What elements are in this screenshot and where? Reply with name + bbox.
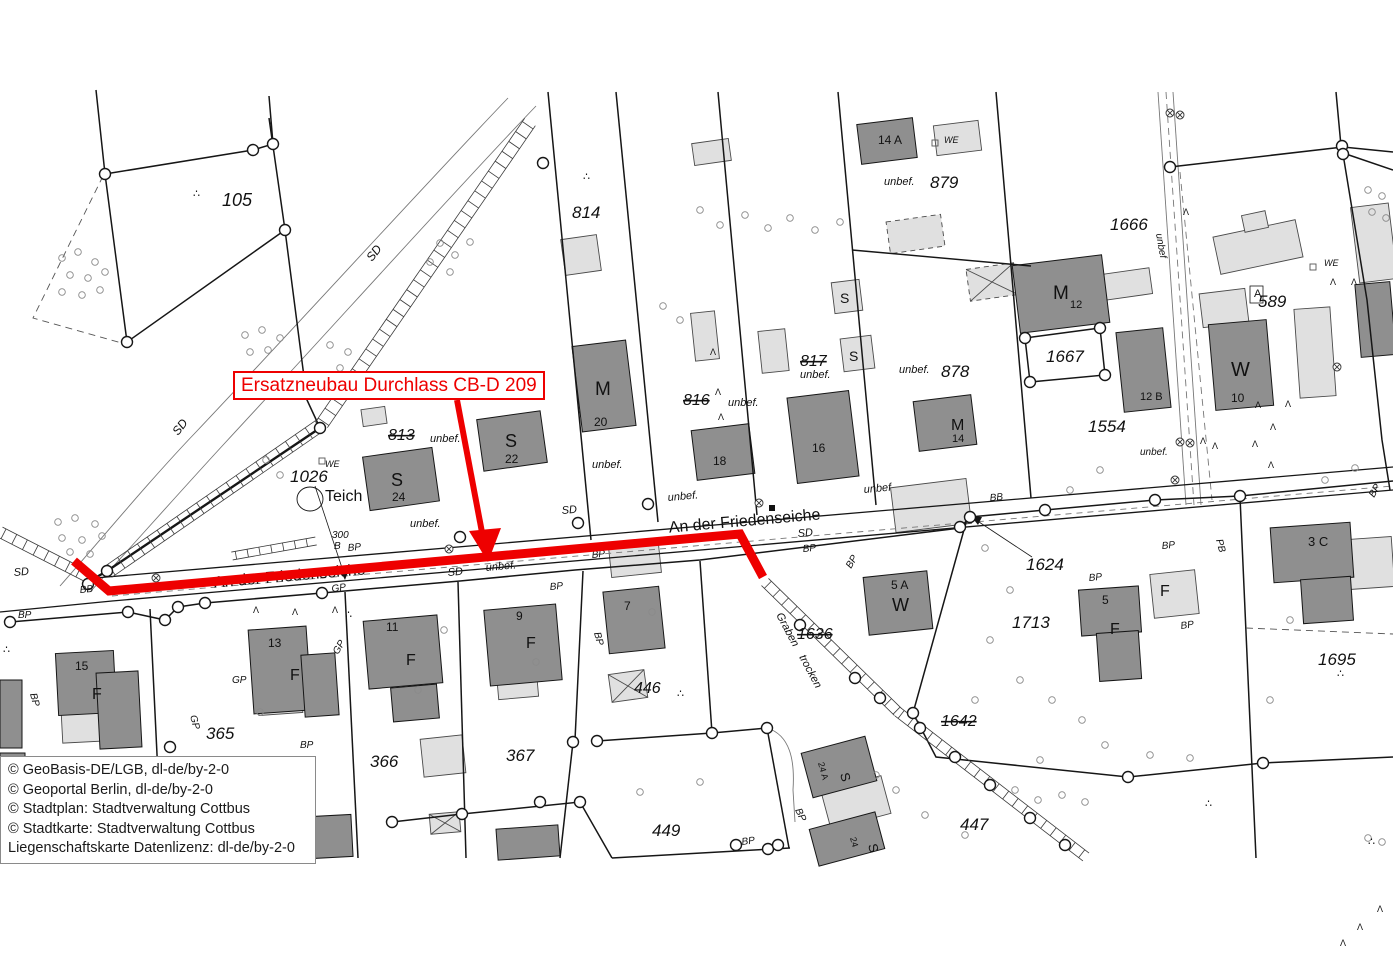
embankment-tie bbox=[33, 545, 38, 555]
map-label: F bbox=[92, 686, 102, 703]
boundary-vertex-circle bbox=[122, 337, 133, 348]
bush-symbol bbox=[447, 269, 454, 276]
dark-building bbox=[363, 615, 443, 689]
boundary-vertex-circle bbox=[1095, 323, 1106, 334]
embankment-tie bbox=[54, 556, 59, 566]
grass-symbol: Λ bbox=[718, 412, 724, 422]
embankment-tie bbox=[842, 657, 849, 664]
embankment-tie bbox=[1041, 820, 1047, 828]
boundary-vertex-circle bbox=[268, 139, 279, 150]
boundary-vertex-circle bbox=[455, 532, 466, 543]
map-label: 300 bbox=[332, 530, 349, 541]
map-label: F bbox=[1160, 583, 1170, 600]
boundary bbox=[1170, 147, 1393, 167]
embankment-tie bbox=[927, 732, 933, 740]
embankment-tie bbox=[177, 516, 184, 527]
bush-symbol bbox=[1067, 487, 1074, 494]
bush-symbol bbox=[1287, 617, 1294, 624]
bush-symbol bbox=[1102, 742, 1109, 749]
map-label: SD bbox=[447, 566, 463, 579]
dark-building bbox=[1355, 282, 1393, 358]
grass-symbol: Λ bbox=[1212, 441, 1218, 451]
embankment-tie bbox=[325, 408, 336, 415]
map-label: 814 bbox=[572, 203, 600, 222]
bush-symbol bbox=[1379, 193, 1386, 200]
map-label: unbef bbox=[1153, 233, 1168, 261]
bush-symbol bbox=[1012, 787, 1019, 794]
bush-symbol bbox=[79, 537, 86, 544]
map-label: W bbox=[892, 595, 909, 615]
dark-building bbox=[484, 604, 562, 686]
boundary-vertex-circle bbox=[5, 617, 16, 628]
grass-symbol: Λ bbox=[253, 605, 259, 615]
boundary-vertex-circle bbox=[1040, 505, 1051, 516]
embankment-tie bbox=[400, 299, 411, 306]
bush-symbol bbox=[1007, 587, 1014, 594]
bush-symbol bbox=[92, 521, 99, 528]
light-building bbox=[758, 329, 789, 374]
boundary-vertex-circle bbox=[908, 708, 919, 719]
attribution-line: © Geoportal Berlin, dl-de/by-2-0 bbox=[8, 781, 308, 801]
bush-symbol bbox=[1049, 697, 1056, 704]
embankment-tie bbox=[898, 710, 904, 718]
boundary-vertex-circle bbox=[731, 840, 742, 851]
map-label: 365 bbox=[206, 724, 235, 743]
bush-symbol bbox=[1267, 697, 1274, 704]
bush-symbol bbox=[441, 627, 448, 634]
boundary-vertex-circle bbox=[1100, 370, 1111, 381]
map-label: 1695 bbox=[1318, 650, 1356, 669]
bush-symbol bbox=[467, 239, 474, 246]
boundary bbox=[96, 90, 273, 174]
map-label: B bbox=[334, 541, 341, 552]
map-label: BP bbox=[844, 553, 860, 570]
embankment-tie bbox=[386, 319, 397, 326]
bush-symbol bbox=[99, 533, 106, 540]
map-label: BP bbox=[347, 542, 362, 554]
dot-triple-symbol: ∴ bbox=[1205, 798, 1212, 810]
dark-building bbox=[1270, 522, 1354, 582]
boundary-vertex-circle bbox=[1025, 377, 1036, 388]
map-label: BP bbox=[1180, 619, 1195, 632]
grass-symbol: Λ bbox=[1270, 422, 1276, 432]
map-label: BP bbox=[1367, 482, 1383, 499]
boundary-vertex-circle bbox=[200, 598, 211, 609]
bush-symbol bbox=[59, 289, 66, 296]
dot-triple-symbol: ∴ bbox=[1337, 668, 1344, 680]
bush-symbol bbox=[1059, 792, 1066, 799]
bush-symbol bbox=[787, 215, 794, 222]
boundary-vertex-circle bbox=[915, 723, 926, 734]
boundary-vertex-circle bbox=[707, 728, 718, 739]
map-label: Teich bbox=[325, 488, 362, 505]
embankment-tie bbox=[44, 551, 49, 561]
map-label: SD bbox=[169, 416, 191, 438]
map-label: GP bbox=[232, 675, 247, 686]
map-label: S bbox=[505, 431, 517, 451]
embankment-tie bbox=[1012, 798, 1018, 806]
bush-symbol bbox=[327, 342, 334, 349]
map-label: SD bbox=[797, 527, 813, 540]
embankment-tie bbox=[271, 545, 272, 553]
bush-symbol bbox=[697, 779, 704, 786]
bush-symbol bbox=[59, 255, 66, 262]
embankment-tie bbox=[366, 349, 377, 356]
dark-building bbox=[913, 395, 977, 452]
map-label: BP bbox=[18, 610, 32, 621]
map-label: PB bbox=[1213, 538, 1227, 554]
boundary bbox=[852, 250, 1031, 266]
boundary-vertex-circle bbox=[1060, 840, 1071, 851]
diagonal-road-edge bbox=[90, 106, 536, 592]
boundary-vertex-circle bbox=[1150, 495, 1161, 506]
map-label: BB bbox=[989, 492, 1004, 504]
grass-symbol: Λ bbox=[1183, 207, 1189, 217]
map-label: SD bbox=[561, 504, 577, 517]
map-label: S bbox=[391, 470, 403, 490]
dark-building bbox=[809, 812, 885, 866]
bush-symbol bbox=[812, 227, 819, 234]
embankment-tie bbox=[306, 539, 307, 547]
embankment-tie bbox=[393, 309, 404, 316]
map-label: 878 bbox=[941, 362, 970, 381]
dark-building bbox=[1096, 631, 1141, 682]
map-label: M bbox=[595, 379, 611, 400]
boundary-vertex-circle bbox=[457, 809, 468, 820]
attribution-line: Liegenschaftskarte Datenlizenz: dl-de/by… bbox=[8, 839, 308, 859]
boundary bbox=[597, 728, 767, 741]
map-label: 366 bbox=[370, 752, 399, 771]
map-label: 5 A bbox=[891, 578, 908, 592]
light-building bbox=[1150, 570, 1199, 618]
bush-symbol bbox=[765, 225, 772, 232]
boundary bbox=[575, 571, 583, 740]
map-label: 367 bbox=[506, 746, 535, 765]
embankment-tie bbox=[488, 171, 499, 178]
embankment-tie bbox=[294, 541, 295, 549]
grass-symbol: Λ bbox=[1330, 277, 1336, 287]
dark-building bbox=[787, 391, 859, 484]
boundary-vertex-circle bbox=[160, 615, 171, 626]
bush-symbol bbox=[1147, 752, 1154, 759]
boundary-vertex-circle bbox=[985, 780, 996, 791]
embankment-tie bbox=[413, 280, 424, 287]
boundary-vertex-circle bbox=[1025, 813, 1036, 824]
map-label: F bbox=[1110, 621, 1120, 638]
boundary-vertex-circle bbox=[165, 742, 176, 753]
map-label: F bbox=[406, 652, 416, 669]
map-label: 816 bbox=[683, 392, 710, 409]
boundary-vertex-circle bbox=[643, 499, 654, 510]
embankment-tie bbox=[359, 359, 370, 366]
light-building bbox=[692, 139, 732, 166]
bush-symbol bbox=[247, 349, 254, 356]
embankment-tie bbox=[495, 161, 506, 168]
map-label: WE bbox=[1324, 258, 1339, 268]
embankment-rail bbox=[104, 419, 318, 567]
embankment-tie bbox=[282, 543, 283, 551]
embankment-tie bbox=[509, 141, 520, 148]
map-label: 1666 bbox=[1110, 215, 1148, 234]
embankment-rail bbox=[112, 429, 326, 577]
map-label: BP bbox=[300, 740, 314, 751]
parcel-inner-dashed bbox=[1180, 172, 1212, 500]
map-label: unbef. bbox=[1140, 447, 1168, 458]
bush-symbol bbox=[277, 335, 284, 342]
embankment-tie bbox=[1050, 828, 1056, 836]
boundary-vertex-circle bbox=[1165, 162, 1176, 173]
light-building bbox=[1294, 307, 1336, 398]
embankment-tie bbox=[482, 181, 493, 188]
map-label: 446 bbox=[634, 680, 661, 697]
boundary-vertex-circle bbox=[387, 817, 398, 828]
map-label: 449 bbox=[652, 821, 681, 840]
bush-symbol bbox=[265, 347, 272, 354]
map-label: M bbox=[951, 417, 964, 434]
grass-symbol: Λ bbox=[1377, 904, 1383, 914]
boundary bbox=[1343, 153, 1393, 170]
grass-symbol: Λ bbox=[292, 607, 298, 617]
grass-symbol: Λ bbox=[1351, 277, 1357, 287]
map-label: 7 bbox=[624, 599, 631, 613]
grass-symbol: Λ bbox=[1200, 436, 1206, 446]
map-label: GP bbox=[331, 582, 347, 595]
bush-symbol bbox=[837, 219, 844, 226]
boundary-vertex-circle bbox=[955, 522, 966, 533]
bush-symbol bbox=[79, 292, 86, 299]
grass-symbol: Λ bbox=[332, 605, 338, 615]
embankment-rail bbox=[901, 708, 1089, 853]
embankment-tie bbox=[782, 598, 789, 605]
dark-building bbox=[301, 653, 339, 717]
dot-triple-symbol: ∴ bbox=[345, 609, 352, 621]
embankment-tie bbox=[461, 211, 472, 218]
map-label: unbef. bbox=[800, 369, 831, 381]
boundary-vertex-circle bbox=[535, 797, 546, 808]
dark-building bbox=[603, 586, 665, 654]
bush-symbol bbox=[677, 317, 684, 324]
map-label: trocken bbox=[796, 653, 824, 690]
embankment-tie bbox=[65, 562, 70, 572]
map-label: BP bbox=[549, 581, 564, 593]
bush-symbol bbox=[717, 222, 724, 229]
embankment-tie bbox=[468, 201, 479, 208]
map-label: unbef. bbox=[410, 518, 441, 530]
map-label: M bbox=[1053, 283, 1069, 304]
map-label: SD bbox=[13, 566, 29, 579]
bush-symbol bbox=[972, 697, 979, 704]
grass-symbol: Λ bbox=[1252, 439, 1258, 449]
boundary-vertex-circle bbox=[100, 169, 111, 180]
bush-symbol bbox=[72, 515, 79, 522]
map-label: BB bbox=[79, 584, 94, 596]
boundary-vertex-circle bbox=[123, 607, 134, 618]
attribution-line: © Stadtkarte: Stadtverwaltung Cottbus bbox=[8, 820, 308, 840]
bush-symbol bbox=[97, 287, 104, 294]
map-label: 20 bbox=[594, 415, 608, 429]
map-label: 105 bbox=[222, 190, 253, 210]
map-label: 10 bbox=[1231, 391, 1245, 405]
map-label: unbef. bbox=[884, 176, 915, 188]
bush-symbol bbox=[637, 789, 644, 796]
embankment-tie bbox=[516, 131, 527, 138]
embankment-tie bbox=[867, 682, 874, 689]
bush-symbol bbox=[85, 275, 92, 282]
map-label: 24 bbox=[392, 490, 406, 504]
map-label: 813 bbox=[388, 427, 415, 444]
map-label: 879 bbox=[930, 173, 959, 192]
map-label: 1667 bbox=[1046, 347, 1084, 366]
bush-symbol bbox=[893, 787, 900, 794]
bush-symbol bbox=[1079, 717, 1086, 724]
dot-triple-symbol: ∴ bbox=[3, 644, 10, 656]
embankment-tie bbox=[247, 549, 248, 557]
bush-symbol bbox=[452, 252, 459, 259]
bush-symbol bbox=[1097, 467, 1104, 474]
dark-building bbox=[1301, 576, 1354, 623]
map-label: 5 bbox=[1102, 593, 1109, 607]
boundary bbox=[560, 742, 573, 858]
embankment-tie bbox=[522, 122, 533, 129]
bush-symbol bbox=[1037, 757, 1044, 764]
map-label: 14 bbox=[952, 433, 964, 445]
embankment-tie bbox=[790, 606, 797, 613]
boundary-vertex-circle bbox=[315, 423, 326, 434]
boundary-vertex-circle bbox=[568, 737, 579, 748]
boundary-vertex-circle bbox=[1123, 772, 1134, 783]
map-label: W bbox=[1231, 359, 1250, 381]
boundary-vertex-circle bbox=[1235, 491, 1246, 502]
boundary-vertex-circle bbox=[248, 145, 259, 156]
bush-symbol bbox=[102, 269, 109, 276]
boundary-dashed bbox=[1246, 628, 1393, 634]
utility-square-symbol bbox=[1310, 264, 1316, 270]
boundary-vertex-circle bbox=[850, 673, 861, 684]
bush-symbol bbox=[55, 519, 62, 526]
map-label: 9 bbox=[516, 609, 523, 623]
boundary-vertex-circle bbox=[1258, 758, 1269, 769]
embankment-tie bbox=[850, 665, 857, 672]
boundary-vertex-circle bbox=[173, 602, 184, 613]
map-label: unbef. bbox=[430, 433, 461, 445]
bush-symbol bbox=[67, 272, 74, 279]
map-label: 1026 bbox=[290, 467, 328, 486]
grass-symbol: Λ bbox=[715, 387, 721, 397]
bush-symbol bbox=[1017, 677, 1024, 684]
boundary bbox=[616, 92, 658, 522]
bush-symbol bbox=[1379, 839, 1386, 846]
map-label: unbef. bbox=[485, 559, 517, 574]
map-label: 12 bbox=[1070, 299, 1082, 311]
light-buildings-layer bbox=[61, 120, 1393, 834]
bush-symbol bbox=[92, 259, 99, 266]
map-label: 11 bbox=[386, 620, 399, 634]
boundary-vertex-circle bbox=[950, 752, 961, 763]
embankment-tie bbox=[12, 534, 17, 544]
embankment-tie bbox=[773, 590, 780, 597]
boundary bbox=[700, 561, 712, 733]
light-building bbox=[361, 406, 387, 426]
map-labels-layer: 105SDSD814816unbef.817unbef.879unbef.14 … bbox=[13, 133, 1383, 854]
embankment-tie bbox=[379, 329, 390, 336]
dark-building bbox=[691, 424, 755, 481]
boundary-vertex-circle bbox=[280, 225, 291, 236]
dark-building bbox=[96, 671, 142, 749]
light-building bbox=[886, 214, 945, 253]
map-label: 447 bbox=[960, 815, 989, 834]
boundary-vertex-circle bbox=[538, 158, 549, 169]
boundary bbox=[548, 92, 591, 540]
map-label: S bbox=[849, 348, 858, 364]
light-building bbox=[561, 235, 602, 276]
map-label: 3 C bbox=[1308, 534, 1328, 549]
embankment-tie bbox=[1, 529, 6, 539]
boundary-vertex-circle bbox=[573, 518, 584, 529]
embankment-tie bbox=[197, 503, 204, 514]
map-label: unbef. bbox=[899, 364, 930, 376]
embankment-tie bbox=[965, 762, 971, 770]
bush-symbol bbox=[922, 812, 929, 819]
embankment-tie bbox=[1022, 806, 1028, 814]
map-page: ΛΛΛΛΛΛΛΛΛΛΛΛΛΛΛΛΛΛΛ∴∴∴∴∴∴∴∴ 105SDSD81481… bbox=[0, 0, 1393, 964]
boundary bbox=[95, 428, 320, 578]
boundary bbox=[1336, 92, 1341, 146]
bush-symbol bbox=[742, 212, 749, 219]
grass-symbol: Λ bbox=[1255, 400, 1261, 410]
embankment-tie bbox=[187, 510, 194, 521]
map-label: 1624 bbox=[1026, 555, 1064, 574]
map-label: GP bbox=[187, 714, 201, 731]
map-label: SD bbox=[363, 242, 385, 264]
boundary-vertex-circle bbox=[592, 736, 603, 747]
bush-symbol bbox=[1365, 187, 1372, 194]
grass-symbol: Λ bbox=[1340, 938, 1346, 948]
embankment-tie bbox=[407, 290, 418, 297]
embankment-tie bbox=[434, 250, 445, 257]
map-label: 22 bbox=[505, 452, 519, 466]
map-label: 817 bbox=[800, 353, 828, 370]
light-building bbox=[420, 735, 466, 777]
dot-triple-symbol: ∴ bbox=[1368, 836, 1375, 848]
embankment-tie bbox=[259, 547, 260, 555]
embankment-tie bbox=[420, 270, 431, 277]
embankment-tie bbox=[235, 551, 236, 559]
boundary-vertex-circle bbox=[773, 840, 784, 851]
attribution-box: © GeoBasis-DE/LGB, dl-de/by-2-0 © Geopor… bbox=[0, 756, 316, 864]
boundary bbox=[913, 713, 1393, 777]
map-label: BP bbox=[591, 631, 605, 647]
map-label: 14 A bbox=[878, 133, 902, 147]
embankment-tie bbox=[764, 581, 771, 588]
bush-symbol bbox=[1187, 755, 1194, 762]
map-label: 1636 bbox=[797, 626, 833, 643]
map-label: BP bbox=[1161, 540, 1176, 552]
bush-symbol bbox=[1035, 797, 1042, 804]
map-label: 1554 bbox=[1088, 417, 1126, 436]
boundary-vertex-circle bbox=[875, 693, 886, 704]
bush-symbol bbox=[697, 207, 704, 214]
map-label: unbef. bbox=[728, 397, 759, 409]
boundary bbox=[1240, 497, 1256, 858]
map-label: WE bbox=[325, 459, 340, 469]
map-label: 15 bbox=[75, 659, 89, 673]
map-label: BP bbox=[1088, 572, 1103, 584]
map-label: unbef bbox=[863, 482, 892, 496]
light-building bbox=[1101, 268, 1152, 300]
embankment-tie bbox=[502, 151, 513, 158]
dot-triple-symbol: ∴ bbox=[677, 688, 684, 700]
map-label: BP bbox=[741, 835, 756, 848]
